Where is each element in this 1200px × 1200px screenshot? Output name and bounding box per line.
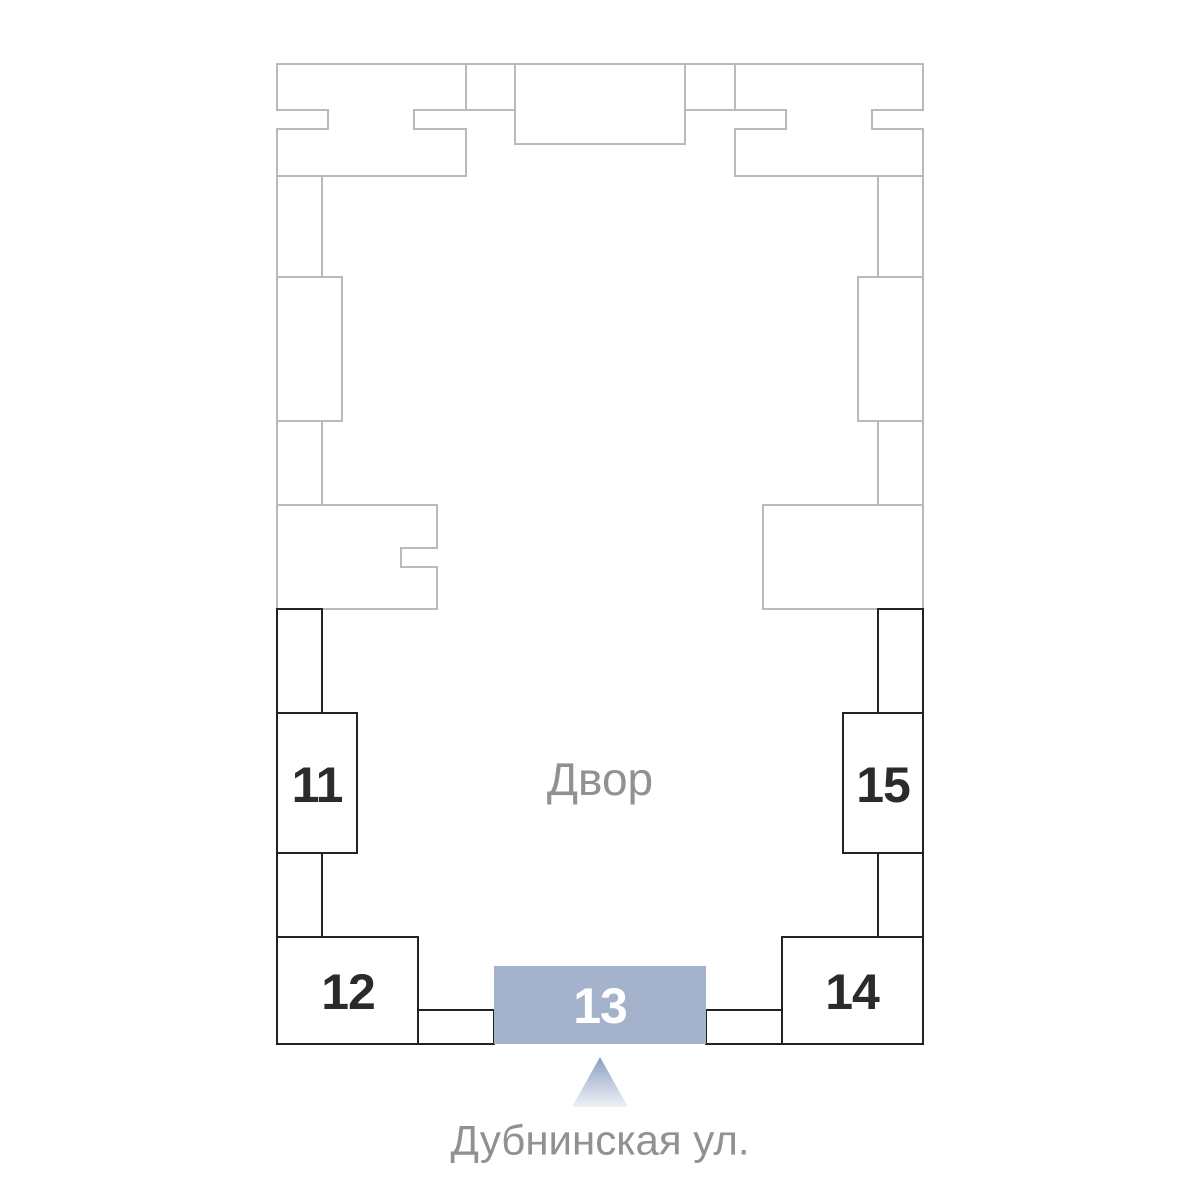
right-connector-strip	[878, 609, 923, 713]
building-15-number: 15	[856, 757, 910, 813]
building-13-number: 13	[573, 978, 627, 1034]
mid-right-building-outline	[763, 505, 923, 609]
building-14-number: 14	[825, 964, 880, 1020]
left-connector-strip	[277, 853, 322, 937]
upper-right-building-outline	[735, 64, 923, 176]
bottom-right-connector-strip	[706, 1010, 782, 1044]
left-connector-strip	[277, 609, 322, 713]
street-label: Дубнинская ул.	[450, 1117, 749, 1164]
upper-right-connector-outline	[685, 64, 735, 110]
bottom-left-connector-strip	[418, 1010, 494, 1044]
upper-left-connector-outline	[466, 64, 515, 110]
building-12[interactable]: 12	[277, 937, 418, 1044]
building-14[interactable]: 14	[782, 937, 923, 1044]
upper-center-building-outline	[515, 64, 685, 144]
mid-left-building-outline	[277, 505, 437, 609]
site-plan: 11 12 13 14 15 Двор Дубнинская ул.	[0, 0, 1200, 1200]
building-12-number: 12	[321, 964, 375, 1020]
left-wing-block-outline	[277, 277, 342, 421]
building-11[interactable]: 11	[277, 713, 357, 853]
background-buildings-group	[277, 64, 923, 609]
right-connector-strip	[878, 853, 923, 937]
building-11-number: 11	[292, 757, 343, 813]
site-plan-page: 11 12 13 14 15 Двор Дубнинская ул.	[0, 0, 1200, 1200]
right-wing-block-outline	[858, 277, 923, 421]
left-wing-strip-outline	[277, 176, 322, 277]
upper-left-building-outline	[277, 64, 466, 176]
left-wing-strip-outline	[277, 421, 322, 505]
building-13-selected[interactable]: 13	[494, 966, 706, 1044]
right-wing-strip-outline	[878, 421, 923, 505]
courtyard-label: Двор	[547, 753, 653, 805]
right-wing-strip-outline	[878, 176, 923, 277]
building-15[interactable]: 15	[843, 713, 923, 853]
street-direction-arrow-icon	[572, 1057, 628, 1107]
